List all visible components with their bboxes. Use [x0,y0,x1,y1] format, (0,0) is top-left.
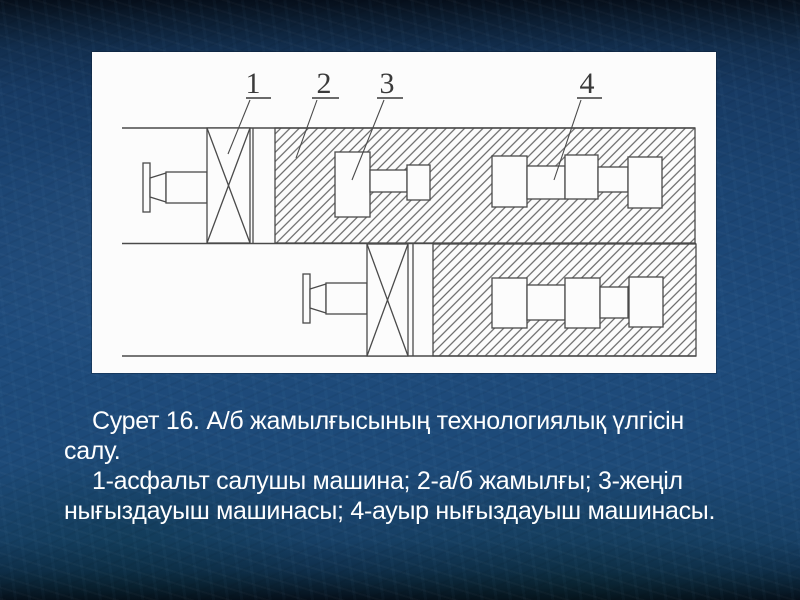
feeder-truck-symbol-upper [143,163,207,212]
roller-frame [598,167,628,192]
roller-drum [629,277,663,327]
caption-line-3: 1-асфальт салушы машина; 2-а/б жамылғы; … [64,466,776,496]
roller-drum [335,152,370,217]
roller-frame [527,166,565,199]
asphalt-paver-symbol-upper [207,128,253,243]
truck-plate [143,163,150,212]
roller-drum [565,155,598,199]
truck-neck [150,173,166,202]
figure-panel: 1 2 3 4 [92,52,716,373]
heavy-roller-symbol-lower [492,277,663,328]
roller-drum [407,165,430,200]
roller-frame [370,170,407,192]
feeder-truck-symbol-lower [303,274,367,323]
roller-frame [600,287,628,318]
presentation-slide: 1 2 3 4 Сурет 1 [0,0,800,600]
caption-line-2: салу. [64,436,776,466]
callout-2-label: 2 [317,67,332,100]
truck-body [326,283,367,314]
caption-line-4: нығыздауыш машинасы; 4-ауыр нығыздауыш м… [64,496,776,526]
callout-1-label: 1 [246,67,261,100]
roller-frame [527,285,565,320]
figure-caption: Сурет 16. А/б жамылғысының технологиялық… [64,406,776,526]
roller-drum [565,278,600,328]
truck-plate [303,274,310,323]
roller-drum [492,278,527,328]
truck-neck [310,284,326,313]
asphalt-paver-symbol-lower [367,244,413,356]
callout-4-label: 4 [580,67,595,100]
roller-drum [628,157,662,208]
roller-drum [492,156,527,207]
caption-line-1: Сурет 16. А/б жамылғысының технологиялық… [64,406,776,436]
callout-3-label: 3 [380,67,395,100]
technology-scheme-diagram: 1 2 3 4 [92,52,716,373]
truck-body [166,172,207,203]
